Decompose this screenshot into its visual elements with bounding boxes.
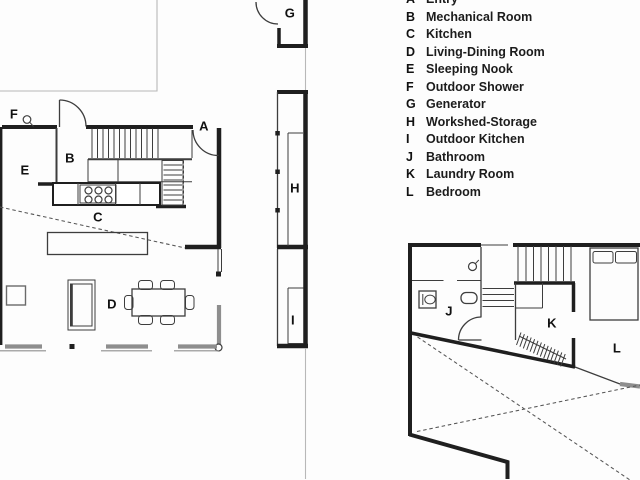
legend-key: E [406,61,422,79]
screen-window [218,249,222,272]
legend-key: H [406,114,422,132]
stairs-lower-flight [483,289,515,307]
legend-row: J Bathroom [406,149,636,167]
legend-label: Outdoor Kitchen [426,131,525,149]
legend-key: K [406,166,422,184]
floor-plan-upper [408,245,640,480]
shelf-unit [162,161,183,206]
dashed-guide-line [418,337,631,480]
window-band [620,384,640,387]
deck-outline [0,0,157,91]
legend-row: I Outdoor Kitchen [406,131,636,149]
plan-label-nook: E [21,163,30,178]
legend-row: A Entry [406,0,636,9]
outbuilding-strip [256,0,308,479]
floor-plan-page: A B C D E F G H I J K L A Entry B Mechan… [0,0,640,480]
legend-row: E Sleeping Nook [406,61,636,79]
sink-icon [461,293,477,304]
post-dot [275,131,280,136]
dining-table-icon [125,281,195,325]
door-arc [459,317,482,340]
legend-row: L Bedroom [406,184,636,202]
door-arc [60,100,87,127]
legend-key: C [406,26,422,44]
post-dot [216,272,221,277]
post-dot [70,344,75,349]
sofa-icon [68,280,95,330]
post-dot [275,208,280,213]
legend-key: J [406,149,422,167]
plan-label-shower: F [10,107,18,122]
legend-label: Sleeping Nook [426,61,513,79]
legend-label: Bathroom [426,149,485,167]
legend-key: B [406,9,422,27]
wall [410,435,510,463]
legend-key: A [406,0,422,9]
legend-key: I [406,131,422,149]
post-dot [275,170,280,175]
stairs-upper-flight [518,246,571,281]
legend-row: G Generator [406,96,636,114]
legend-label: Workshed-Storage [426,114,537,132]
plan-label-outdoor-kitchen: I [291,313,295,328]
legend-label: Mechanical Room [426,9,532,27]
legend-label: Kitchen [426,26,472,44]
plan-label-kitchen: C [93,210,103,225]
legend-label: Laundry Room [426,166,514,184]
legend-label: Entry [426,0,458,9]
side-table [7,286,26,305]
deck-edge [575,367,620,384]
shower-head-icon [23,116,31,124]
plan-label-bathroom: J [445,304,453,319]
legend-label: Living-Dining Room [426,44,545,62]
legend-key: D [406,44,422,62]
plan-label-mechanical: B [65,151,75,166]
legend-row: B Mechanical Room [406,9,636,27]
legend-row: H Workshed-Storage [406,114,636,132]
legend-row: F Outdoor Shower [406,79,636,97]
legend-row: D Living-Dining Room [406,44,636,62]
legend-label: Bedroom [426,184,481,202]
closet-partition [516,283,543,308]
stairs [92,129,158,159]
legend-row: K Laundry Room [406,166,636,184]
toilet-icon [419,291,436,308]
plan-label-entry: A [199,119,209,134]
plan-label-workshed: H [290,181,300,196]
shelf-hatch [164,165,183,200]
plan-label-bedroom: L [613,341,621,356]
legend-key: F [406,79,422,97]
legend-label: Generator [426,96,486,114]
plan-label-generator: G [285,6,295,21]
legend-label: Outdoor Shower [426,79,524,97]
shower-head-icon [475,260,479,264]
plan-label-laundry: K [547,316,557,331]
door-arc-entry [193,130,219,156]
dashed-guide-line [417,385,640,432]
legend-row: C Kitchen [406,26,636,44]
legend-key: L [406,184,422,202]
door-arc [256,2,278,24]
room-legend: A Entry B Mechanical Room C Kitchen D Li… [406,0,636,201]
bed-icon [590,248,638,320]
legend-key: G [406,96,422,114]
plan-label-living: D [107,297,117,312]
kitchen-island [48,233,148,255]
